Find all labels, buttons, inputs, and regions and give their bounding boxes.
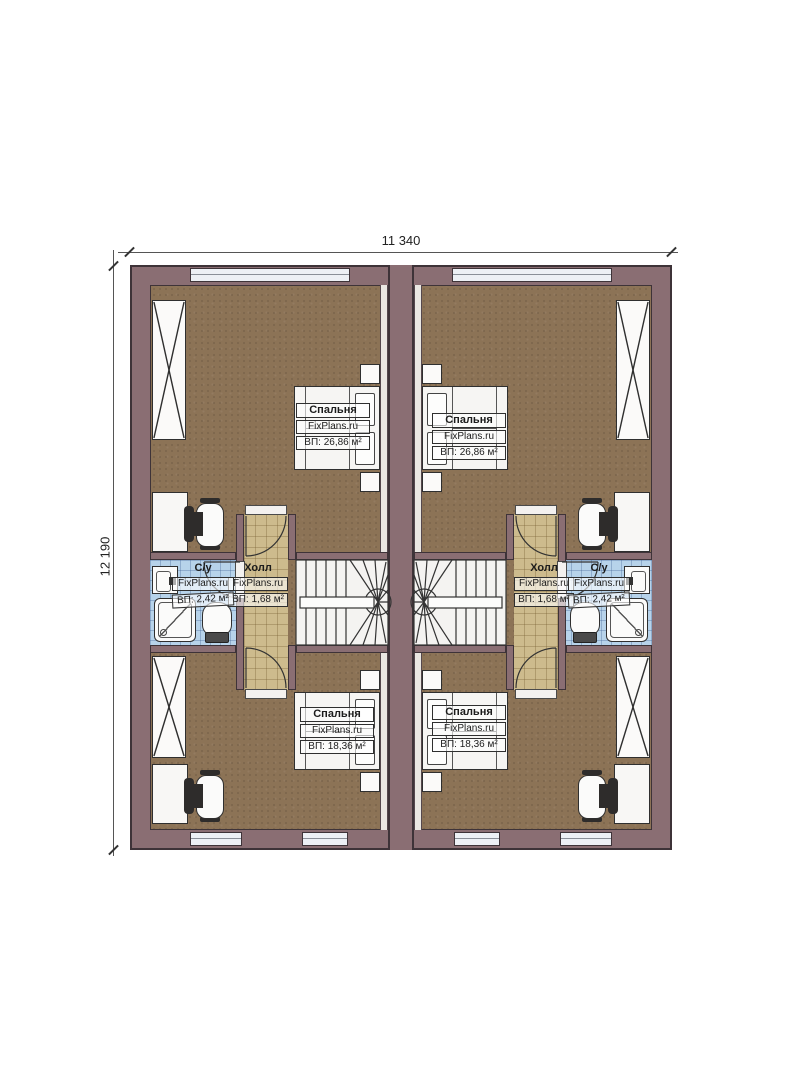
room-name: Спальня (432, 413, 506, 428)
watermark: FixPlans.ru (432, 430, 506, 444)
dimension-line (113, 250, 114, 856)
room-area: ВП: 2,42 м² (172, 591, 235, 608)
room-area: ВП: 18,36 м² (300, 740, 374, 754)
watermark: FixPlans.ru (514, 577, 574, 591)
wall-strip (414, 285, 422, 552)
wardrobe-symbol (616, 300, 650, 440)
dimension-value: 12 190 (98, 509, 113, 605)
room-label-bedroom-top-left: Спальня FixPlans.ru ВП: 26,86 м² (296, 403, 370, 450)
nightstand-symbol (422, 364, 442, 384)
room-label-bedroom-bottom-right: Спальня FixPlans.ru ВП: 18,36 м² (432, 705, 506, 752)
watermark: FixPlans.ru (300, 724, 374, 738)
room-area: ВП: 1,68 м² (228, 593, 288, 607)
room-name: С/у (568, 562, 630, 575)
nightstand-symbol (422, 772, 442, 792)
watermark: FixPlans.ru (432, 722, 506, 736)
door-opening (515, 505, 557, 515)
door-opening (515, 689, 557, 699)
room-name: Холл (228, 562, 288, 575)
wardrobe-symbol (616, 656, 650, 758)
wardrobe-x-icon (617, 657, 649, 757)
room-area: ВП: 18,36 м² (432, 738, 506, 752)
room-label-bedroom-top-right: Спальня FixPlans.ru ВП: 26,86 м² (432, 413, 506, 460)
dimension-value: 11 340 (341, 233, 461, 248)
party-wall (388, 265, 414, 850)
watermark: FixPlans.ru (172, 577, 234, 591)
room-name: Холл (514, 562, 574, 575)
wall (414, 645, 506, 653)
dimension-line (118, 252, 678, 253)
room-label-hall-right: Холл FixPlans.ru ВП: 1,68 м² (514, 562, 574, 607)
room-area: ВП: 2,42 м² (568, 591, 631, 608)
office-chair-symbol (574, 498, 618, 550)
wall-strip (414, 653, 422, 830)
wall (566, 645, 652, 653)
floorplan-canvas: Спальня FixPlans.ru ВП: 26,86 м² Спальня… (0, 0, 792, 1080)
office-chair-symbol (574, 770, 618, 822)
wall (414, 552, 506, 560)
nightstand-symbol (422, 670, 442, 690)
room-label-wc-left: С/у FixPlans.ru ВП: 2,42 м² (172, 562, 234, 607)
room-name: Спальня (432, 705, 506, 720)
desk-symbol (614, 492, 650, 552)
room-label-wc-right: С/у FixPlans.ru ВП: 2,42 м² (568, 562, 630, 607)
watermark: FixPlans.ru (296, 420, 370, 434)
room-area: ВП: 26,86 м² (296, 436, 370, 450)
wall (506, 645, 514, 690)
wardrobe-x-icon (617, 301, 649, 439)
watermark: FixPlans.ru (568, 577, 630, 591)
room-area: ВП: 1,68 м² (514, 593, 574, 607)
room-name: С/у (172, 562, 234, 575)
wall (506, 514, 514, 560)
room-label-bedroom-bottom-left: Спальня FixPlans.ru ВП: 18,36 м² (300, 707, 374, 754)
nightstand-symbol (422, 472, 442, 492)
wall (566, 552, 652, 560)
watermark: FixPlans.ru (228, 577, 288, 591)
room-name: Спальня (300, 707, 374, 722)
room-area: ВП: 26,86 м² (432, 446, 506, 460)
room-name: Спальня (296, 403, 370, 418)
desk-symbol (614, 764, 650, 824)
room-label-hall-left: Холл FixPlans.ru ВП: 1,68 м² (228, 562, 288, 607)
